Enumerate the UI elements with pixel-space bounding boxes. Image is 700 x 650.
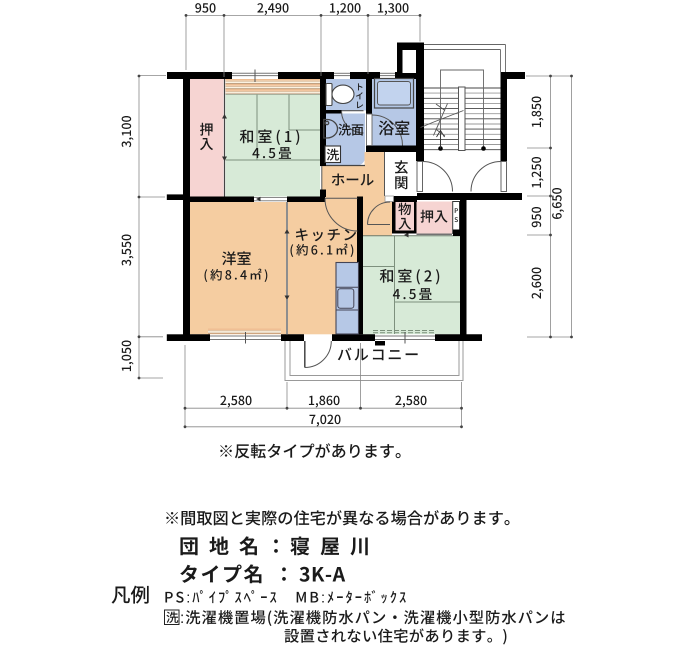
svg-text:2,490: 2,490 [257,0,289,17]
svg-text:950: 950 [526,206,545,227]
svg-text:950: 950 [195,0,216,17]
svg-text:(約6.1㎡): (約6.1㎡) [289,240,356,259]
svg-text:※間取図と実際の住宅が異なる場合があります。: ※間取図と実際の住宅が異なる場合があります。 [164,505,520,529]
svg-text:3,100: 3,100 [116,115,135,147]
svg-text:(約8.4㎡): (約8.4㎡) [203,265,270,284]
svg-text:洗: 洗 [326,145,339,164]
svg-text:押入: 押入 [420,207,448,227]
svg-text:入: 入 [200,134,214,154]
svg-text:1,860: 1,860 [308,390,340,409]
svg-text:設置されない住宅があります。): 設置されない住宅があります。) [284,625,508,647]
svg-text:1,250: 1,250 [526,156,545,188]
svg-text:7,020: 7,020 [309,409,341,428]
svg-text:入: 入 [398,213,412,233]
svg-text:レ: レ [355,99,364,111]
svg-text:浴室: 浴室 [378,115,410,139]
svg-text:タイプ名：3K-A: タイプ名：3K-A [179,559,346,588]
svg-text:1,050: 1,050 [116,340,135,372]
svg-text:4.5畳: 4.5畳 [393,283,435,303]
svg-text:1,300: 1,300 [377,0,409,17]
svg-text:※反転タイプがあります。: ※反転タイプがあります。 [218,438,411,462]
svg-text:1,850: 1,850 [526,96,545,128]
svg-text:2,580: 2,580 [220,390,252,409]
svg-text:2,600: 2,600 [526,267,545,299]
svg-text:4.5畳: 4.5畳 [252,142,294,162]
svg-text:S: S [454,214,458,224]
svg-text:凡例: 凡例 [111,579,150,608]
svg-text:PS:ﾊﾟｲﾌﾟｽﾍﾟｰｽ MB:ﾒｰﾀｰﾎﾞｯｸｽ: PS:ﾊﾟｲﾌﾟｽﾍﾟｰｽ MB:ﾒｰﾀｰﾎﾞｯｸｽ [164,587,408,608]
svg-text:6,650: 6,650 [547,187,566,219]
svg-text:2,580: 2,580 [395,390,427,409]
svg-text:1,200: 1,200 [329,0,361,17]
svg-text:3,550: 3,550 [116,234,135,266]
svg-text:ホール: ホール [331,169,375,190]
svg-text:洗: 洗 [166,607,179,626]
svg-text:関: 関 [394,172,409,193]
svg-text:洗面: 洗面 [338,120,364,139]
svg-text:バルコニー: バルコニー [337,344,421,365]
